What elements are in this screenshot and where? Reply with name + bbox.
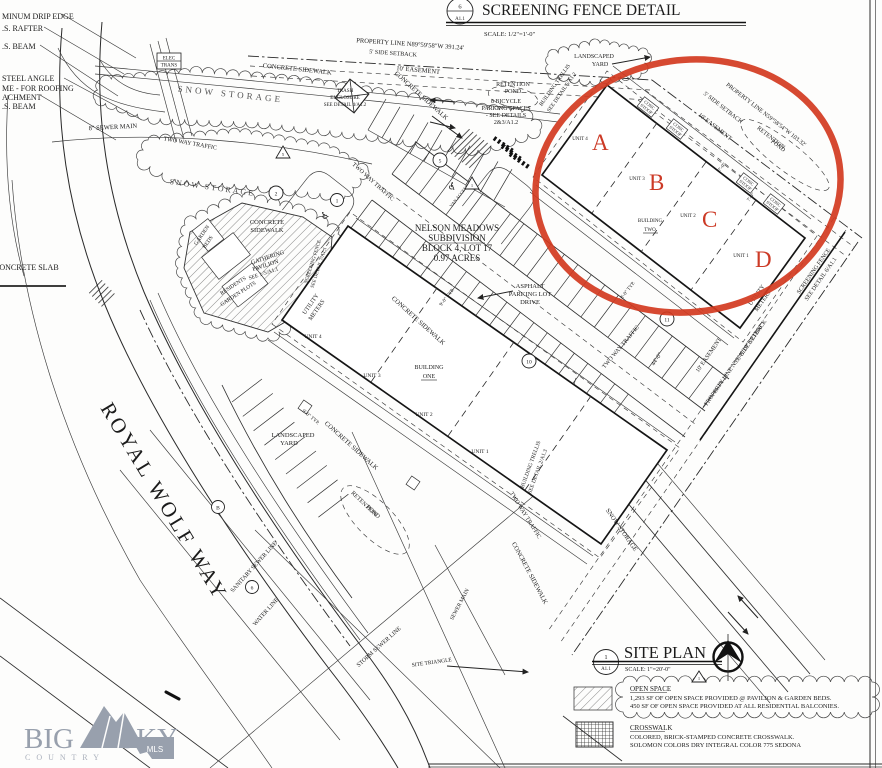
keynote-2: 2 (275, 192, 278, 198)
b2-unit1: UNIT 1 (733, 254, 749, 259)
label-easement-ne: 10' EASEMENT (697, 112, 733, 142)
keynote-5: 5 (439, 159, 442, 165)
label-sidewalk: SIDEWALK (250, 227, 284, 234)
b1-unit1: UNIT 1 (471, 449, 488, 455)
note-drip-edge: MINUM DRIP EDGE (2, 12, 74, 21)
legend-open-space: OPEN SPACE 1,293 SF OF OPEN SPACE PROVID… (574, 685, 839, 710)
legend-tri: 1 (698, 676, 700, 681)
b2-unit4: UNIT 4 (572, 137, 588, 142)
dim-7: 7'-0" (718, 162, 728, 173)
label-trash: TRASH (337, 89, 354, 94)
label-pond: POND (505, 89, 522, 95)
label-block-lot: BLOCK 4, LOT 17 (422, 243, 493, 253)
detail-title: SCREENING FENCE DETAIL (482, 2, 681, 19)
label-pond: POND (365, 504, 381, 520)
keynote-b: B (216, 506, 220, 512)
b2-unit3: UNIT 3 (629, 177, 645, 182)
siteplan-scale: SCALE: 1"=20'-0" (625, 667, 671, 673)
handicap-symbol: ♿ (446, 180, 458, 193)
label-bike: 8 BICYCLE (491, 99, 522, 105)
label-sewer-main-8: 8" SEWER MAIN (89, 123, 138, 133)
site-plan-drawing: 6 A1.1 SCREENING FENCE DETAIL SCALE: 1/2… (0, 0, 882, 768)
label-bike: 2&3/A1.2 (494, 120, 518, 126)
screening-fence-detail-titleblock: 6 A1.1 SCREENING FENCE DETAIL SCALE: 1/2… (446, 0, 746, 38)
label-acres: 0.97 ACRES (434, 253, 481, 263)
siteplan-title: SITE PLAN (624, 643, 706, 662)
legend-crosswalk: CROSSWALK COLORED, BRICK-STAMPED CONCRET… (563, 716, 801, 761)
b1-one: ONE (423, 374, 436, 380)
label-setback-top: 5' SIDE SETBACK (369, 49, 418, 58)
unit-marker-c: C (702, 207, 717, 232)
keynote-10: 10 (526, 360, 532, 366)
note-concrete-slab: CONCRETE SLAB (0, 263, 59, 272)
label-trash: SEE DETAIL 4/A1.2 (324, 103, 367, 108)
label-yard: YARD (592, 62, 609, 68)
dim-9: 9'-0" TYP. (301, 409, 320, 426)
label-landscaped: LANDSCAPED (574, 54, 614, 60)
unit-marker-a: A (592, 130, 609, 155)
site-plan-sheet: 6 A1.1 SCREENING FENCE DETAIL SCALE: 1/2… (0, 0, 882, 768)
label-water: WATER LINE (252, 597, 280, 627)
label-drive: DRIVE (520, 299, 540, 306)
label-concrete-sidewalk: CONCRETE SIDEWALK (510, 541, 549, 606)
crosswalk-line2: SOLOMON COLORS DRY INTEGRAL COLOR 775 SE… (630, 742, 801, 749)
label-bike: - SEE DETAILS (486, 113, 526, 119)
unit-marker-d: D (755, 247, 772, 272)
siteplan-sheet: A1.1 (601, 667, 611, 672)
pen-mark (166, 692, 179, 699)
crosswalk-title: CROSSWALK (630, 724, 672, 732)
detail-scale: SCALE: 1/2"=1'-0" (484, 31, 535, 38)
label-easement-se: 10' EASEMENT (695, 337, 723, 374)
logo-country: C O U N T R Y (25, 753, 101, 762)
b2-two: TWO (644, 228, 656, 233)
note-beam: .S. BEAM (2, 42, 36, 51)
mls-label: MLS (147, 745, 163, 754)
keynote-6: 6 (251, 586, 254, 592)
label-two-way: TWO WAY TRAFFIC (351, 162, 395, 203)
b1-unit3: UNIT 3 (363, 373, 380, 379)
open-space-title: OPEN SPACE (630, 685, 671, 693)
b2-name: BUILDING (638, 219, 663, 224)
label-site-triangle: SITE TRIANGLE (411, 657, 452, 669)
keynote-tri-1: 1 (471, 183, 473, 188)
keynote-1: 1 (336, 199, 339, 205)
open-space-line1: 1,293 SF OF OPEN SPACE PROVIDED @ PAVILI… (630, 695, 832, 702)
dim-44: 44'-0" (651, 351, 665, 367)
label-trash: ENCLOSURE (330, 96, 359, 101)
label-two-way: TWO WAY TRAFFIC (602, 325, 641, 370)
logo-big: BIG (24, 723, 74, 755)
b2-unit2: UNIT 2 (680, 214, 696, 219)
label-asphalt: ASPHALT (516, 283, 545, 290)
elec-label: ELEC (163, 57, 176, 62)
b1-unit2: UNIT 2 (415, 412, 432, 418)
label-subdivision: SUBDIVISION (428, 233, 486, 243)
b1-name: BUILDING (415, 365, 445, 371)
label-concrete: CONCRETE (250, 219, 284, 226)
label-yard: YARD (280, 440, 298, 447)
note-steel-angle: STEEL ANGLE (2, 74, 54, 83)
label-snow-storage: SNOW STORAGE (169, 177, 256, 198)
open-space-line2: 450 SF OF OPEN SPACE PROVIDED AT ALL RES… (630, 703, 839, 710)
trans-label: TRANS (161, 64, 178, 69)
site-plan-titleblock: 1 A1.1 SITE PLAN SCALE: 1"=20'-0" 1 (592, 634, 743, 682)
keynote-11: 11 (664, 318, 670, 324)
street-name: ROYAL WOLF WAY (96, 398, 233, 604)
b1-unit4: UNIT 4 (304, 334, 321, 340)
handicap-symbol: ♿ (319, 209, 331, 222)
label-nelson-meadows: NELSON MEADOWS (415, 223, 499, 233)
unit-marker-b: B (649, 170, 664, 195)
label-bike: PARKING SPACES (481, 106, 530, 112)
crosswalk-swatch (576, 722, 613, 747)
note-rafter: .S. RAFTER (2, 24, 44, 33)
detail-notes: MINUM DRIP EDGE .S. RAFTER .S. BEAM STEE… (0, 12, 142, 286)
note-roofing: ME - FOR ROOFING (2, 84, 74, 93)
label-concrete-sidewalk: CONCRETE SIDEWALK (323, 420, 379, 472)
detail-sheet: A1.1 (455, 17, 465, 22)
label-retention: RETENTION (496, 82, 530, 88)
open-space-swatch (574, 687, 612, 710)
label-parking-lot: PARKING LOT (509, 291, 552, 298)
bicycle-racks (494, 138, 530, 168)
siteplan-number: 1 (604, 654, 607, 661)
label-landscaped: LANDSCAPED (272, 432, 315, 439)
crosswalk-line1: COLORED, BRICK-STAMPED CONCRETE CROSSWAL… (630, 734, 795, 741)
label-storm: STORM SEWER LINE (356, 626, 403, 669)
label-sewer-main: SEWER MAIN (449, 588, 471, 621)
electrical-transformer: ELEC TRANS (157, 53, 181, 69)
big-sky-mls-logo: BIG SKY C O U N T R Y MLS (24, 692, 179, 762)
